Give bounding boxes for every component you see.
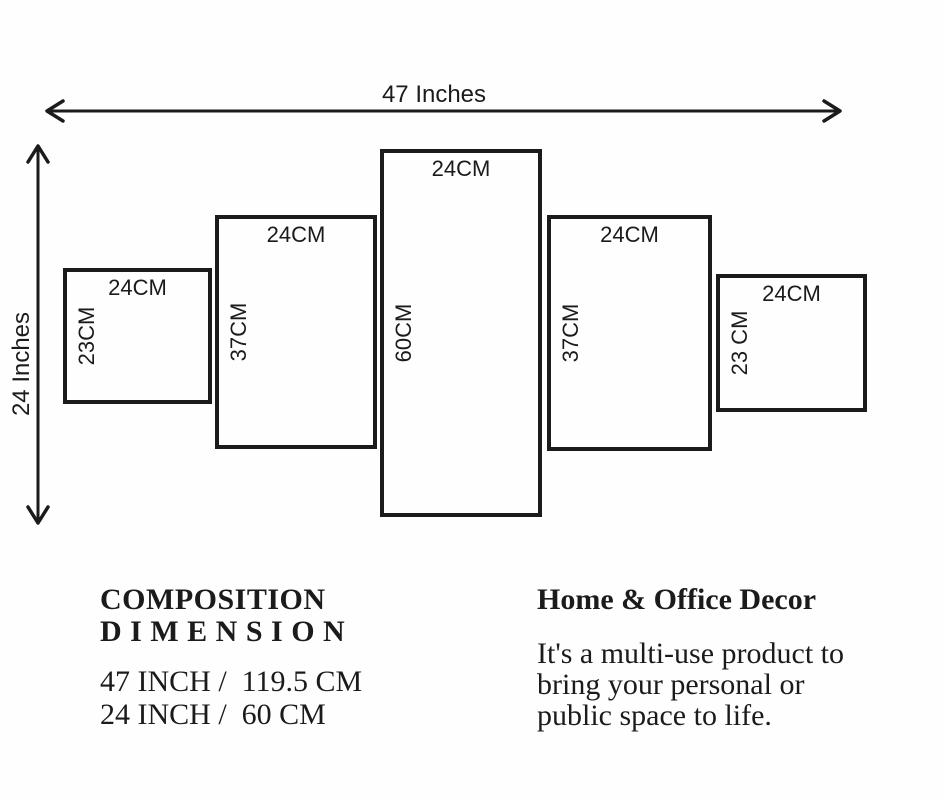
panel-3: 24CM 60CM	[380, 149, 542, 517]
decor-description-line3: public space to life.	[537, 700, 844, 731]
panel-height-label: 23CM	[75, 307, 99, 366]
decor-heading: Home & Office Decor	[537, 584, 844, 616]
panel-height-label: 60CM	[392, 304, 416, 363]
panel-height-label: 23 CM	[728, 311, 752, 376]
composition-width-value: 47 INCH / 119.5 CM	[100, 665, 362, 698]
panel-4: 24CM 37CM	[547, 215, 712, 451]
composition-values: 47 INCH / 119.5 CM 24 INCH / 60 CM	[100, 665, 362, 731]
composition-heading-line1: COMPOSITION	[100, 584, 362, 616]
decor-block: Home & Office Decor It's a multi-use pro…	[537, 584, 844, 731]
panel-dimension-diagram: 47 Inches 24 Inches 24CM 23CM 24CM 37CM …	[0, 0, 945, 800]
panel-height-label: 37CM	[559, 304, 583, 363]
overall-width-label: 47 Inches	[359, 82, 509, 108]
composition-dimension-block: COMPOSITION D I M E N S I O N 47 INCH / …	[100, 584, 362, 731]
panel-width-label: 24CM	[67, 276, 208, 300]
panel-height-label: 37CM	[227, 303, 251, 362]
panel-width-label: 24CM	[720, 282, 863, 306]
panel-width-label: 24CM	[384, 157, 538, 181]
decor-description-line1: It's a multi-use product to	[537, 638, 844, 669]
panel-width-label: 24CM	[551, 223, 708, 247]
panel-width-label: 24CM	[219, 223, 373, 247]
decor-description: It's a multi-use product to bring your p…	[537, 638, 844, 731]
panel-2: 24CM 37CM	[215, 215, 377, 449]
panel-1: 24CM 23CM	[63, 268, 212, 404]
composition-heading-line2: D I M E N S I O N	[100, 616, 362, 648]
overall-height-label: 24 Inches	[7, 312, 37, 416]
panel-5: 24CM 23 CM	[716, 274, 867, 412]
decor-description-line2: bring your personal or	[537, 669, 844, 700]
composition-height-value: 24 INCH / 60 CM	[100, 698, 362, 731]
